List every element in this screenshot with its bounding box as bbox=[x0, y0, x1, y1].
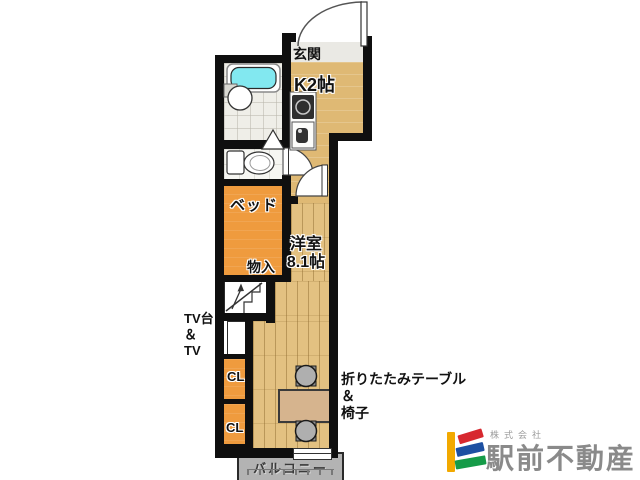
company-name: 駅前不動産 bbox=[486, 437, 636, 477]
main-room-floor bbox=[275, 281, 330, 323]
entrance-door-arc bbox=[298, 2, 367, 46]
balcony-window bbox=[293, 448, 332, 460]
closet-lower-label: CL bbox=[226, 420, 243, 435]
closet-upper-label: CL bbox=[227, 369, 244, 384]
entrance-label: 玄関 bbox=[293, 44, 321, 64]
main-room-floor bbox=[253, 321, 330, 450]
toilet-area bbox=[224, 149, 282, 179]
stairs-box bbox=[224, 281, 268, 315]
tv-label: TV台 ＆ TV bbox=[184, 311, 214, 359]
bathroom-area bbox=[224, 63, 282, 141]
furniture-label: 折りたたみテーブル ＆ 椅子 bbox=[341, 371, 466, 422]
corridor-area bbox=[290, 133, 330, 203]
kitchen-label: K2帖 bbox=[294, 71, 335, 97]
room-label: 洋室 8.1帖 bbox=[280, 236, 332, 272]
storage-label: 物入 bbox=[247, 257, 275, 277]
folding-table bbox=[278, 389, 334, 423]
bed-label: ベッド bbox=[230, 194, 278, 215]
balcony-groove bbox=[247, 469, 334, 475]
floor-plan: バルコニー bbox=[0, 0, 640, 480]
company-logo-mark bbox=[447, 428, 487, 472]
